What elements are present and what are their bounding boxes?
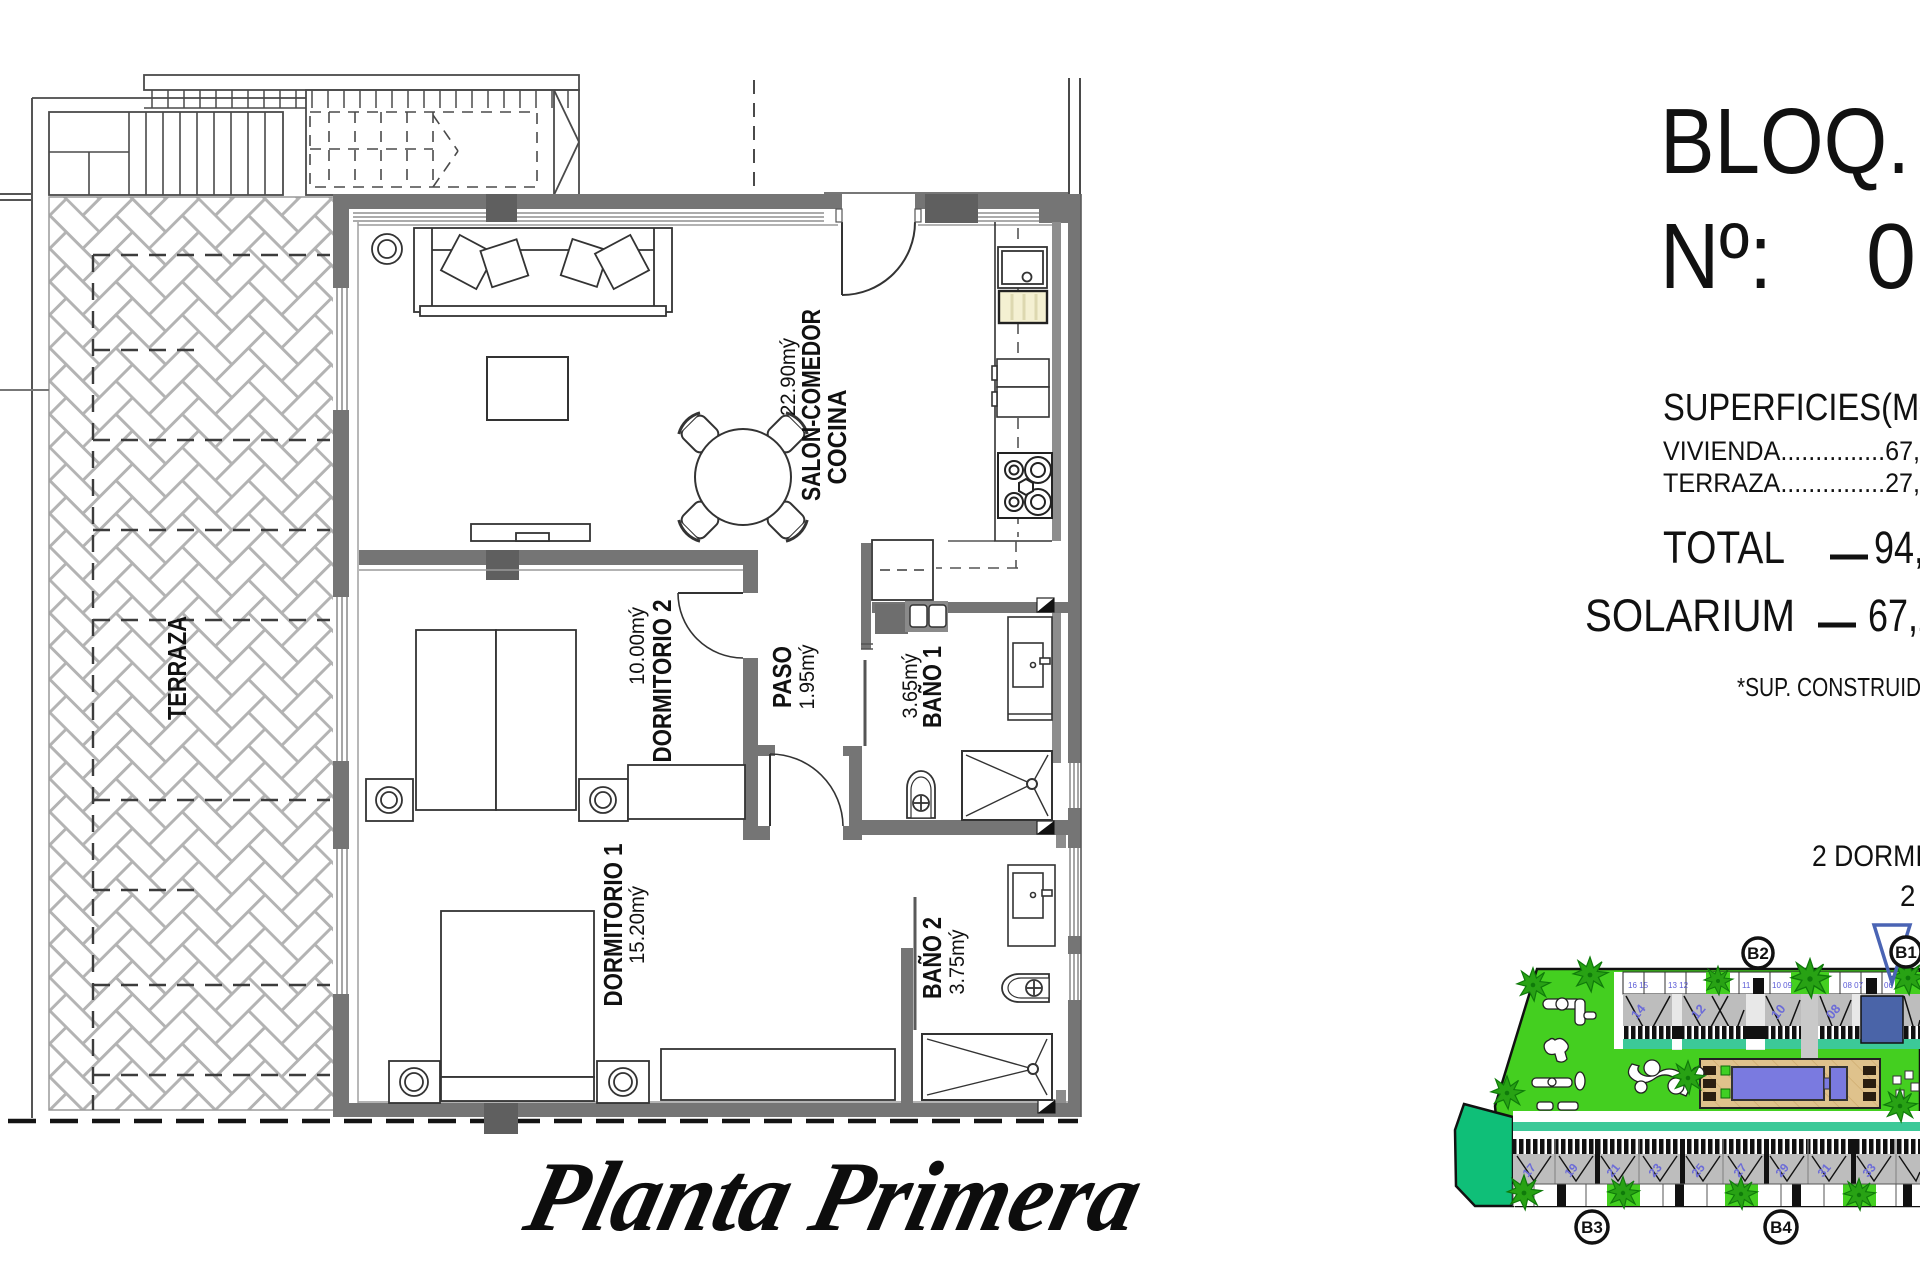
svg-text:SOLARIUM: SOLARIUM: [1585, 590, 1795, 641]
svg-text:1.95mý: 1.95mý: [796, 644, 819, 709]
svg-text:SUPERFICIES(M²): SUPERFICIES(M²): [1663, 387, 1920, 429]
svg-text:TERRAZA: TERRAZA: [162, 616, 192, 720]
svg-text:B4: B4: [1770, 1218, 1792, 1237]
svg-text:DORMITORIO 1: DORMITORIO 1: [598, 844, 628, 1007]
svg-text:3.75mý: 3.75mý: [946, 929, 969, 994]
svg-text:BAÑO 2: BAÑO 2: [917, 917, 947, 999]
svg-text:Nº:: Nº:: [1660, 204, 1772, 308]
svg-text:Planta Primera: Planta Primera: [515, 1141, 1153, 1251]
svg-text:94,65: 94,65: [1874, 522, 1920, 573]
svg-text:BLOQ.: BLOQ.: [1660, 89, 1910, 193]
svg-text:67,25: 67,25: [1868, 590, 1920, 641]
svg-text:TOTAL: TOTAL: [1663, 522, 1785, 573]
svg-text:PASO: PASO: [767, 646, 797, 708]
svg-text:10 09: 10 09: [1772, 981, 1793, 990]
svg-text:BAÑO 1: BAÑO 1: [917, 646, 947, 728]
svg-text:COCINA: COCINA: [822, 389, 852, 484]
svg-text:06: 06: [1866, 204, 1920, 308]
svg-text:11: 11: [1742, 981, 1751, 990]
svg-text:10.00mý: 10.00mý: [626, 607, 649, 685]
svg-text:B3: B3: [1581, 1218, 1603, 1237]
svg-text:2 BAÑOS: 2 BAÑOS: [1900, 879, 1920, 913]
svg-text:VIVIENDA...............67,25: VIVIENDA...............67,25: [1663, 436, 1920, 466]
svg-text:15.20mý: 15.20mý: [626, 886, 649, 964]
svg-text:TERRAZA...............27,40: TERRAZA...............27,40: [1663, 468, 1920, 498]
svg-text:08 07: 08 07: [1843, 981, 1864, 990]
svg-text:13 12: 13 12: [1668, 981, 1689, 990]
svg-text:B1: B1: [1895, 943, 1917, 962]
svg-text:2 DORMITORIOS: 2 DORMITORIOS: [1812, 840, 1920, 873]
svg-text:B2: B2: [1747, 944, 1769, 963]
svg-text:16 15: 16 15: [1628, 981, 1649, 990]
svg-text:*SUP. CONSTRUIDA: *SUP. CONSTRUIDA: [1737, 672, 1920, 702]
svg-text:DORMITORIO 2: DORMITORIO 2: [647, 600, 677, 763]
